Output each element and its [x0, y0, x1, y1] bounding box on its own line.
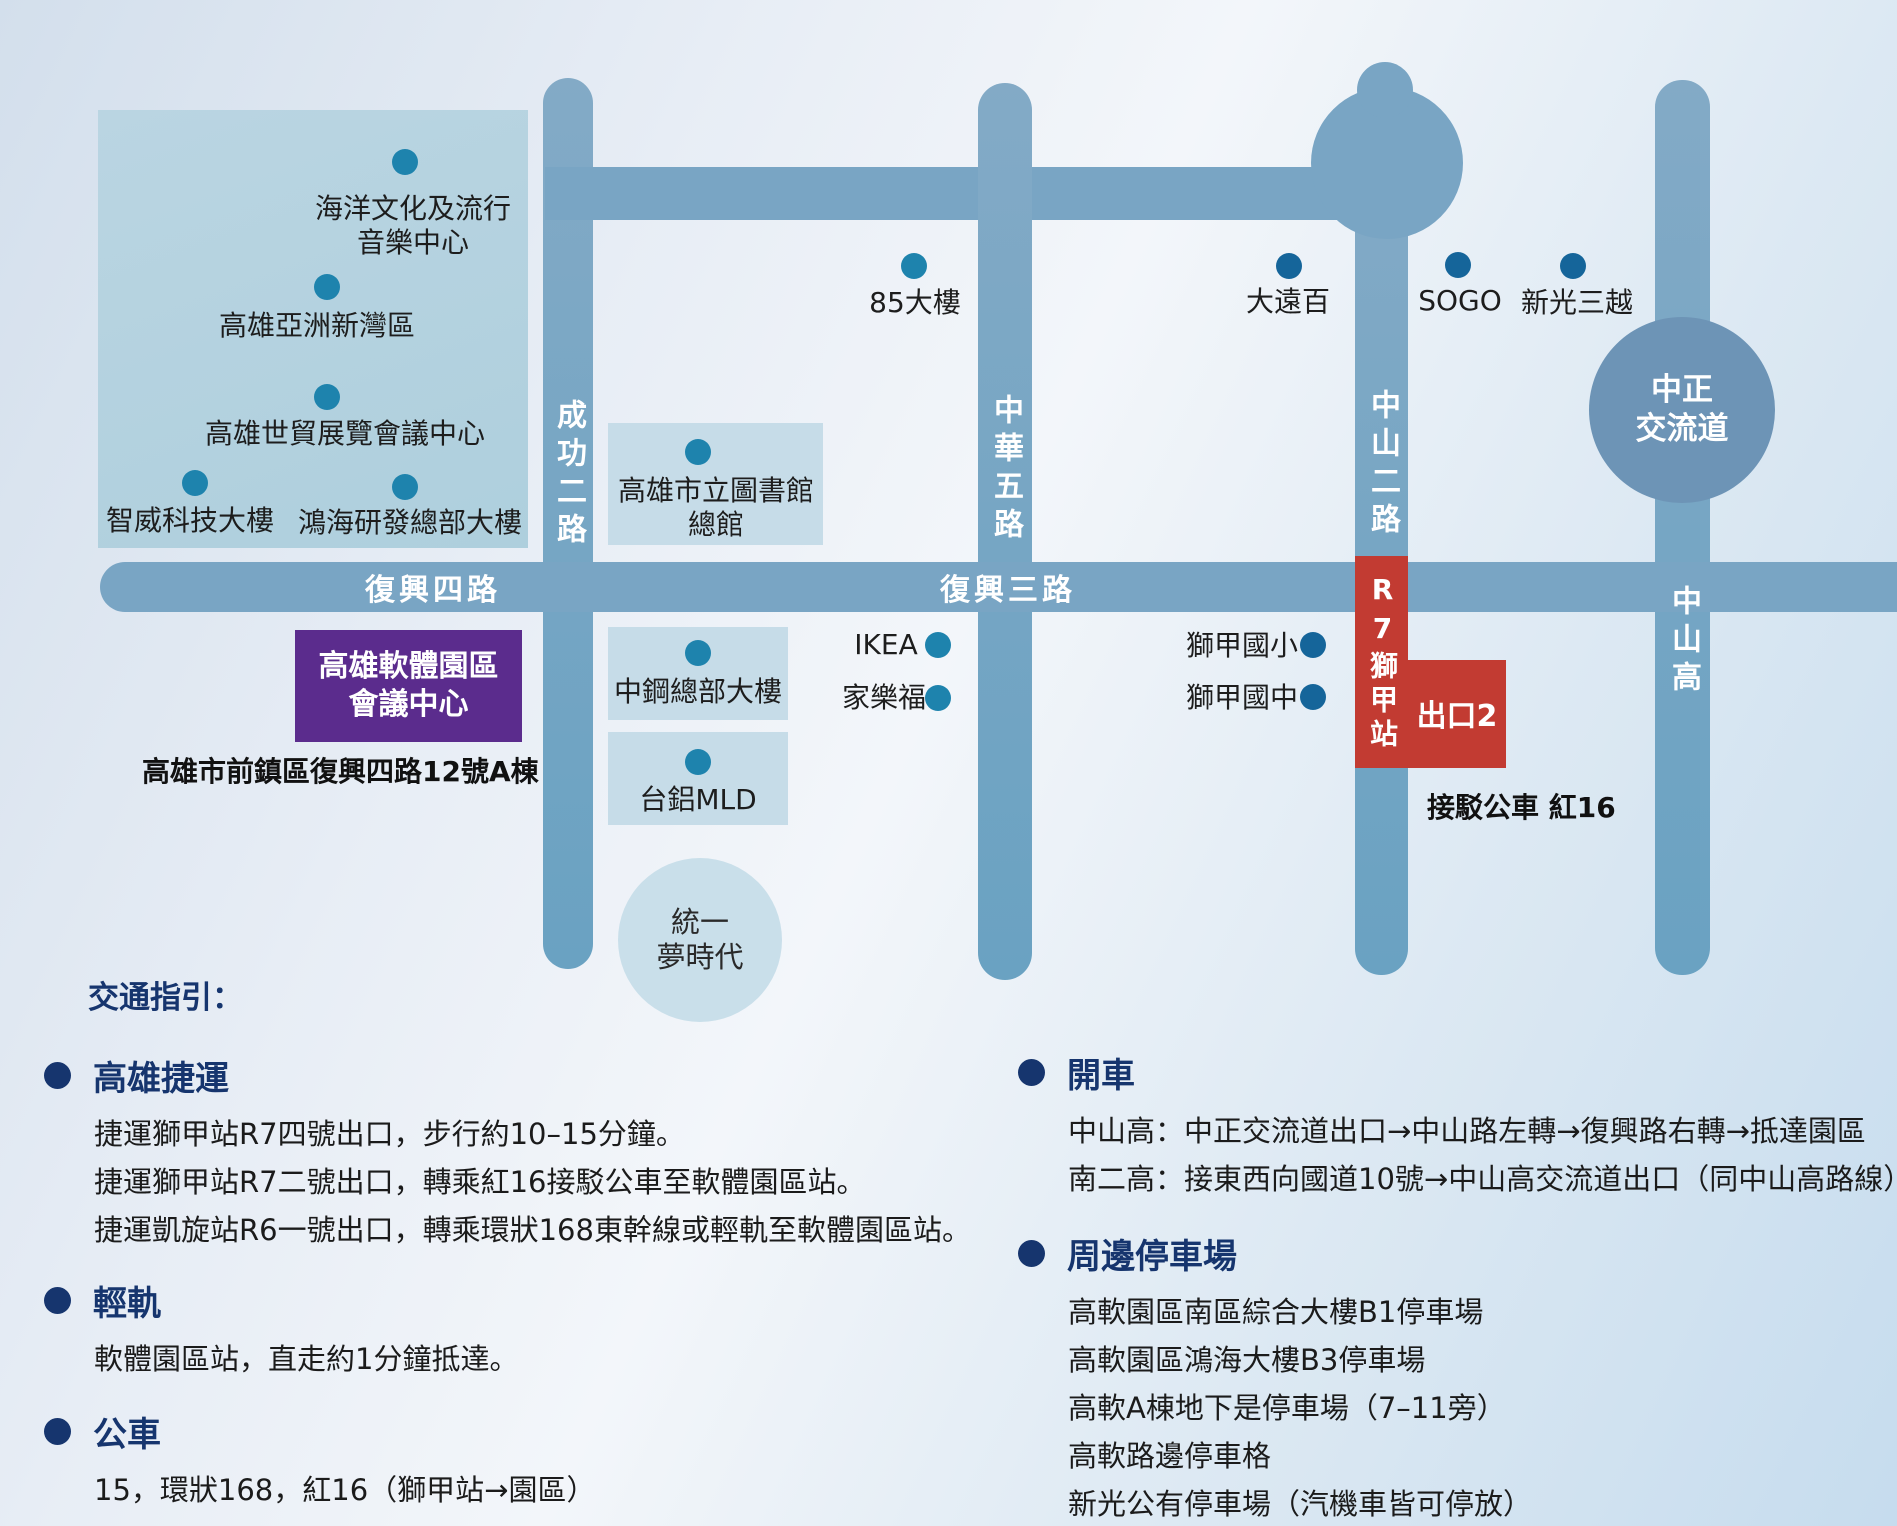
- section-drive: 開車 中山高：中正交流道出口→中山路左轉→復興路右轉→抵達園區 南二高：接東西向…: [1018, 1048, 1888, 1203]
- dayuanbai-label: 大遠百: [1246, 285, 1330, 319]
- mrt-line-3: 捷運凱旋站R6一號出口，轉乘環狀168東幹線或輕軌至軟體園區站。: [94, 1206, 984, 1254]
- section-drive-title: 開車: [1067, 1048, 1135, 1097]
- parking-line-1: 高軟園區南區綜合大樓B1停車場: [1068, 1288, 1888, 1336]
- drive-line-2: 南二高：接東西向國道10號→中山高交流道出口（同中山高路線）: [1068, 1155, 1888, 1203]
- asia-bay-label: 高雄亞洲新灣區: [219, 309, 415, 343]
- foxconn-dot: [392, 474, 418, 500]
- lrt-bullet-icon: [44, 1287, 71, 1314]
- station-r7-label: R7獅甲站: [1362, 573, 1402, 753]
- section-parking: 周邊停車場 高軟園區南區綜合大樓B1停車場 高軟園區鴻海大樓B3停車場 高軟A棟…: [1018, 1229, 1888, 1526]
- shijia-junior-label: 獅甲國中: [1186, 681, 1298, 715]
- mld-label: 台鋁MLD: [639, 783, 756, 817]
- tower85-label: 85大樓: [869, 286, 961, 320]
- carrefour-label: 家樂福: [842, 681, 926, 715]
- directions-title: 交通指引：: [88, 972, 984, 1017]
- sogo-dot: [1445, 252, 1471, 278]
- road-label-zhongshan2: 中山二路: [1360, 389, 1404, 541]
- section-mrt: 高雄捷運 捷運獅甲站R7四號出口，步行約10–15分鐘。 捷運獅甲站R7二號出口…: [44, 1051, 984, 1254]
- road-label-zhonghua: 中華五路: [983, 394, 1027, 546]
- drive-line-1: 中山高：中正交流道出口→中山路左轉→復興路右轉→抵達園區: [1068, 1107, 1888, 1155]
- asia-bay-dot: [314, 274, 340, 300]
- section-mrt-title: 高雄捷運: [93, 1051, 229, 1100]
- shinkong-dot: [1560, 253, 1586, 279]
- library-dot: [685, 439, 711, 465]
- directions-left-column: 交通指引： 高雄捷運 捷運獅甲站R7四號出口，步行約10–15分鐘。 捷運獅甲站…: [44, 972, 984, 1514]
- mld-dot: [685, 749, 711, 775]
- bus-bullet-icon: [44, 1418, 71, 1445]
- csc-dot: [685, 640, 711, 666]
- interchange-label-line1: 中正: [1651, 371, 1713, 410]
- mrt-bullet-icon: [44, 1062, 71, 1089]
- road-label-zhongshan-highway: 中山高: [1661, 585, 1705, 699]
- expo-dot: [314, 384, 340, 410]
- shinkong-label: 新光三越: [1521, 286, 1633, 320]
- carrefour-dot: [925, 685, 951, 711]
- mrt-line-2: 捷運獅甲站R7二號出口，轉乘紅16接駁公車至軟體園區站。: [94, 1158, 984, 1206]
- station-exit2-label: 出口2: [1417, 691, 1498, 735]
- section-parking-title: 周邊停車場: [1067, 1229, 1237, 1278]
- music-center-label-line2: 音樂中心: [315, 226, 511, 260]
- road-zhongshan-highway: [1655, 80, 1710, 975]
- road-label-fuxing3: 復興三路: [940, 565, 1076, 609]
- section-bus-title: 公車: [93, 1407, 161, 1456]
- roundabout-top-bump: [1357, 62, 1413, 118]
- tower85-dot: [901, 253, 927, 279]
- dayuanbai-dot: [1276, 253, 1302, 279]
- library-label: 高雄市立圖書館 總館: [618, 474, 814, 542]
- road-label-chenggong: 成功二路: [546, 399, 590, 551]
- road-top-horizontal: [545, 167, 1345, 220]
- zhiwei-label: 智威科技大樓: [106, 504, 274, 538]
- dream-mall-label-line2: 夢時代: [656, 940, 743, 975]
- shuttle-bus-note: 接駁公車 紅16: [1427, 786, 1616, 826]
- interchange-label-line2: 交流道: [1636, 410, 1729, 449]
- foxconn-label: 鴻海研發總部大樓: [298, 506, 522, 540]
- parking-line-2: 高軟園區鴻海大樓B3停車場: [1068, 1336, 1888, 1384]
- venue-name-line1: 高雄軟體園區: [319, 648, 499, 686]
- venue-address: 高雄市前鎮區復興四路12號A棟: [142, 750, 539, 790]
- shijia-elementary-label: 獅甲國小: [1186, 629, 1298, 663]
- section-lrt: 輕軌 軟體園區站，直走約1分鐘抵達。: [44, 1276, 984, 1383]
- section-bus: 公車 15，環狀168，紅16（獅甲站→園區）: [44, 1407, 984, 1514]
- shijia-junior-dot: [1300, 684, 1326, 710]
- sogo-label: SOGO: [1418, 284, 1502, 318]
- bus-line-1: 15，環狀168，紅16（獅甲站→園區）: [94, 1466, 984, 1514]
- road-label-fuxing4: 復興四路: [365, 565, 501, 609]
- ikea-dot: [925, 632, 951, 658]
- zhiwei-dot: [182, 470, 208, 496]
- section-lrt-title: 輕軌: [93, 1276, 161, 1325]
- mrt-line-1: 捷運獅甲站R7四號出口，步行約10–15分鐘。: [94, 1110, 984, 1158]
- transit-map-page: 中正 交流道 成功二路 中華五路 中山二路 中山高 復興四路 復興三路 海洋文化…: [0, 0, 1897, 1526]
- music-center-label-line1: 海洋文化及流行: [315, 192, 511, 226]
- parking-line-3: 高軟A棟地下是停車場（7–11旁）: [1068, 1384, 1888, 1432]
- parking-bullet-icon: [1018, 1240, 1045, 1267]
- dream-mall-label-line1: 統一: [671, 905, 729, 940]
- ikea-label: IKEA: [854, 628, 917, 662]
- venue-name-line2: 會議中心: [349, 686, 469, 724]
- library-label-line1: 高雄市立圖書館: [618, 474, 814, 508]
- music-center-dot: [392, 149, 418, 175]
- expo-label: 高雄世貿展覽會議中心: [205, 417, 485, 451]
- directions-right-column: 開車 中山高：中正交流道出口→中山路左轉→復興路右轉→抵達園區 南二高：接東西向…: [1018, 1048, 1888, 1526]
- parking-line-4: 高軟路邊停車格: [1068, 1432, 1888, 1480]
- library-label-line2: 總館: [618, 508, 814, 542]
- parking-line-5: 新光公有停車場（汽機車皆可停放）: [1068, 1480, 1888, 1526]
- zhongzheng-interchange-circle: 中正 交流道: [1589, 317, 1775, 503]
- music-center-label: 海洋文化及流行 音樂中心: [315, 192, 511, 260]
- drive-bullet-icon: [1018, 1059, 1045, 1086]
- lrt-line-1: 軟體園區站，直走約1分鐘抵達。: [94, 1335, 984, 1383]
- csc-label: 中鋼總部大樓: [614, 675, 782, 709]
- shijia-elementary-dot: [1300, 632, 1326, 658]
- venue-box: 高雄軟體園區 會議中心: [295, 630, 522, 742]
